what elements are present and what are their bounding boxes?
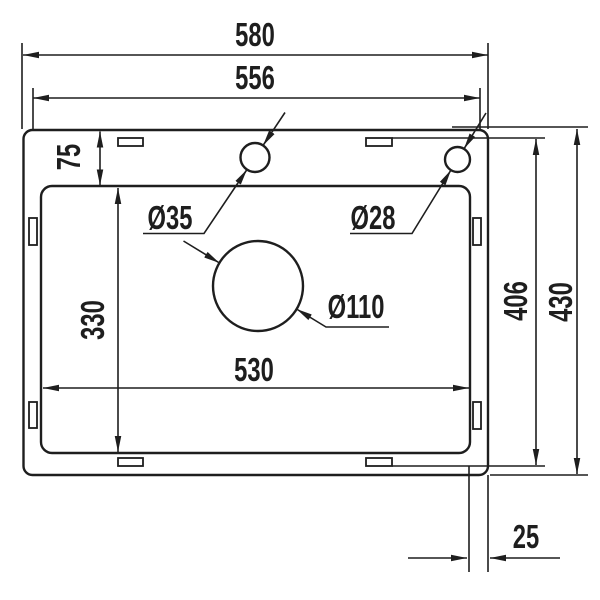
callout-drain-hole-counter-leader — [184, 241, 220, 263]
accessory-hole-circle — [445, 147, 470, 172]
mounting-clip-left-lower — [29, 402, 37, 428]
dim-clip-span-height: 406 — [498, 139, 536, 465]
dim-right-edge-offset-label: 25 — [513, 519, 539, 556]
sink-dimension-drawing: 580 556 75 330 530 406 430 — [0, 0, 600, 600]
dim-right-edge-offset: 25 — [408, 519, 560, 558]
dim-rim-top-offset-label: 75 — [51, 144, 88, 170]
dim-inner-rim-width-label: 556 — [235, 60, 275, 97]
drain-hole-circle — [213, 241, 303, 331]
mounting-clip-right-lower — [473, 402, 481, 429]
faucet-hole-circle — [241, 143, 270, 172]
dim-clip-span-height-label: 406 — [498, 281, 535, 321]
dim-overall-height: 430 — [543, 129, 580, 474]
dim-overall-width-label: 580 — [235, 17, 275, 54]
mounting-clip-right-upper — [473, 218, 481, 245]
dim-bowl-height: 330 — [75, 188, 118, 452]
dim-inner-rim-width: 556 — [33, 60, 480, 98]
dim-bowl-height-label: 330 — [75, 300, 112, 340]
callout-drain-hole-label: Ø110 — [328, 289, 385, 326]
dim-bowl-width: 530 — [43, 352, 469, 389]
callout-accessory-hole: Ø28 — [350, 113, 486, 237]
callout-accessory-hole-label: Ø28 — [351, 200, 396, 237]
mounting-clip-left-upper — [29, 218, 37, 245]
callout-drain-hole: Ø110 — [184, 241, 390, 327]
dim-bowl-width-label: 530 — [234, 352, 274, 389]
dim-overall-height-label: 430 — [543, 282, 580, 322]
dim-rim-top-offset: 75 — [51, 132, 100, 186]
callout-faucet-hole-label: Ø35 — [148, 200, 193, 237]
mounting-clip-top-left — [118, 138, 143, 146]
technical-drawing-canvas: 580 556 75 330 530 406 430 — [0, 0, 600, 600]
mounting-clip-bottom-left — [118, 458, 143, 466]
mounting-clip-bottom-right — [366, 458, 392, 466]
mounting-clip-top-right — [366, 138, 392, 146]
dim-overall-width: 580 — [23, 17, 488, 55]
